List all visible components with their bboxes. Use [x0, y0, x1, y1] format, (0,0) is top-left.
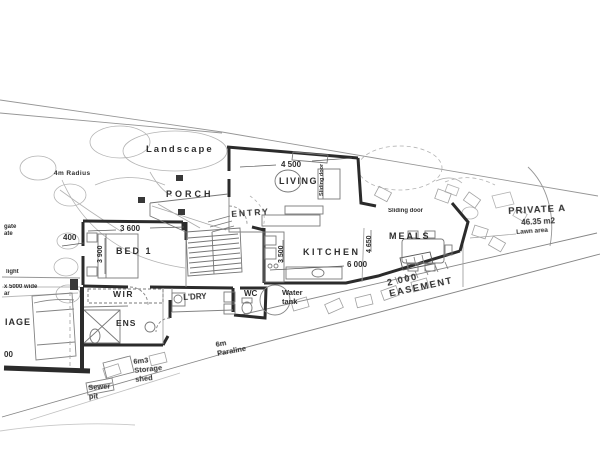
label-ldry: L'DRY: [183, 292, 207, 303]
label-dim-3500: 3 500: [278, 245, 286, 263]
label-light: light: [6, 269, 19, 276]
label-easement: 2 000 EASEMENT: [386, 265, 454, 300]
label-paraline-6m: 6m Paraline: [215, 336, 247, 358]
label-sliding-door: Sliding door: [388, 208, 423, 215]
label-dim-4650: 4 650: [366, 235, 374, 253]
label-storage-shed: 6m3 Storage shed: [133, 355, 164, 384]
label-private-area-m2: 46.35 m2: [521, 216, 555, 227]
label-sliding-door-vertical: Sliding door: [319, 164, 325, 196]
label-dim-3600: 3 600: [120, 224, 140, 233]
label-meals: MEALS: [389, 231, 431, 242]
label-wir: WIR: [113, 289, 134, 299]
label-num-00: 00: [4, 350, 13, 359]
label-gate: gate ate: [4, 224, 16, 238]
label-private-area: PRIVATE A: [508, 203, 566, 217]
label-sewer-pit: Sewer pit: [88, 382, 111, 401]
label-wide-5000: x 5000 wide ar: [4, 284, 37, 298]
label-living: LIVING: [279, 176, 318, 187]
label-lawn-area: Lawn area: [516, 227, 548, 237]
label-wc: WC: [244, 289, 257, 298]
label-porch: PORCH: [166, 189, 214, 200]
plan-labels: Landscape4m RadiusPORCHENTRY4 500LIVINGS…: [0, 0, 600, 450]
label-ens: ENS: [116, 318, 136, 328]
label-entry: ENTRY: [231, 206, 270, 219]
label-iage: IAGE: [5, 317, 31, 328]
label-dim-6000: 6 000: [347, 260, 367, 269]
label-radius-4m: 4m Radius: [54, 170, 90, 178]
label-dim-3900: 3 900: [97, 245, 105, 263]
label-landscape: Landscape: [146, 144, 214, 155]
label-dim-400: 400: [63, 233, 76, 242]
label-kitchen: KITCHEN: [303, 247, 361, 258]
label-bed1: BED 1: [116, 246, 153, 257]
label-water-tank: Water tank: [282, 289, 303, 307]
floor-plan-scan: Landscape4m RadiusPORCHENTRY4 500LIVINGS…: [0, 0, 600, 450]
label-dim-4500: 4 500: [281, 160, 301, 169]
